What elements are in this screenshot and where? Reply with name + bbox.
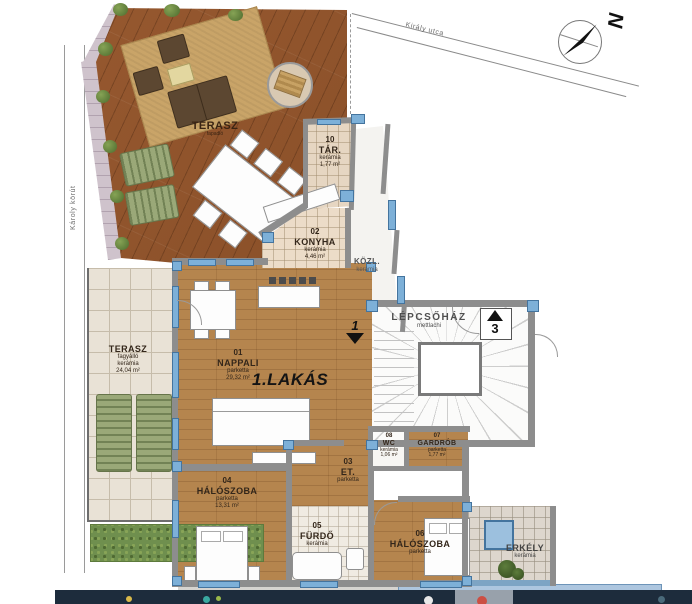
room-finish: parketta (328, 477, 368, 484)
wall-column (351, 114, 365, 124)
room-finish: kerámia (345, 267, 389, 274)
kitchen-hob (269, 277, 276, 284)
room-finish: fagyálló (99, 354, 157, 361)
bed (196, 526, 248, 582)
marker-number: 1 (344, 318, 366, 333)
room-number: 07 (406, 433, 468, 440)
wall-column (462, 502, 472, 512)
room-name: HÁLÓSZOBA (376, 539, 464, 549)
dining-chair (215, 281, 230, 291)
window-segment (172, 418, 179, 450)
terrace-edge (87, 268, 89, 522)
room-label-kozl: KÖZL. kerámia (345, 258, 389, 274)
marker-number: 3 (481, 321, 509, 336)
room-finish: parketta (376, 549, 464, 556)
room-number: 08 (372, 433, 406, 440)
room-name: NAPPALI (210, 358, 266, 368)
hedge-bush (164, 4, 180, 17)
wall-segment (368, 426, 470, 432)
street-edge-line (64, 45, 65, 573)
balcony-rail (466, 580, 556, 586)
kitchen-counter (258, 286, 320, 308)
property-line-dashed (350, 14, 351, 114)
terrace-edge (87, 520, 179, 522)
room-finish: kerámia (286, 247, 344, 254)
room-number: 06 (376, 530, 464, 539)
street-label-kiraly-utca: Király utca (405, 22, 445, 38)
floorplan-canvas: Károly körút Király utca N (0, 0, 692, 604)
window-segment (397, 276, 405, 304)
room-name: TÁR. (310, 145, 350, 155)
hedge-bush (110, 190, 124, 203)
room-finish: fapadló (185, 132, 245, 138)
dining-chair (194, 281, 209, 291)
wall-column (462, 576, 472, 586)
room-name: KÖZL. (345, 258, 389, 267)
hedge-bush (113, 3, 128, 16)
bathtub (292, 552, 342, 580)
room-label-terasz-tile: TERASZ fagyálló kerámia 24,04 m² (99, 344, 157, 374)
room-area: 24,04 m² (99, 368, 157, 375)
taskbar-icon-yellow[interactable] (126, 596, 132, 602)
stair-treads (374, 329, 414, 439)
room-number: 05 (288, 522, 346, 531)
room-finish: kerámia (310, 155, 350, 162)
pillow (223, 531, 243, 542)
washbasin (346, 548, 364, 570)
wall-column (262, 232, 274, 243)
sun-lounger (96, 394, 132, 472)
room-finish: kerámia (288, 541, 346, 548)
room-name: KONYHA (286, 237, 344, 247)
taskbar-icon-red[interactable] (477, 596, 487, 604)
wall-segment (288, 440, 344, 446)
room-label-haloszoba06: 06 HÁLÓSZOBA parketta (376, 530, 464, 556)
room-area: 4,46 m² (286, 254, 344, 261)
wall-segment (368, 470, 374, 586)
window-segment (172, 352, 179, 398)
kitchen-hob (309, 277, 316, 284)
tv-bench (252, 452, 316, 464)
kitchen-hob (299, 277, 306, 284)
room-number: 04 (188, 477, 266, 486)
room-label-lepcsohaz: LÉPCSŐHÁZ mettlachi (388, 312, 470, 330)
dining-chair (215, 329, 230, 339)
hedge-bush (103, 140, 117, 153)
nightstand (248, 566, 260, 581)
wall-column (172, 261, 182, 271)
window-segment (172, 500, 179, 538)
window-segment (300, 581, 338, 588)
room-label-tar: 10 TÁR. kerámia 1,77 m² (310, 136, 350, 168)
room-area: 1,06 m² (372, 453, 406, 459)
taskbar-icon-white[interactable] (424, 596, 433, 604)
room-label-erkely: ERKÉLY kerámia (498, 543, 552, 560)
kitchen-hob (289, 277, 296, 284)
room-area: 1,77 m² (406, 453, 468, 459)
nightstand (184, 566, 196, 581)
hedge-bush (115, 237, 129, 250)
window-segment (198, 581, 240, 588)
room-name: ERKÉLY (498, 543, 552, 553)
hedge-bush (98, 42, 113, 56)
hedge-bush (96, 90, 110, 103)
wall-column (172, 576, 182, 586)
room-number: 01 (210, 349, 266, 358)
wall-segment (398, 496, 470, 502)
taskbar (55, 590, 692, 604)
wall-segment (286, 440, 292, 585)
sofa (212, 398, 310, 446)
entrance-marker-1: 1 (344, 318, 366, 344)
sofa-seam (213, 411, 309, 412)
room-label-gardrob: 07 GARDRÓB parketta 1,77 m² (406, 433, 468, 459)
wall-column (283, 440, 294, 450)
window-segment (317, 119, 341, 125)
room-label-et: 03 ET. parketta (328, 458, 368, 484)
room-name: LÉPCSŐHÁZ (388, 312, 470, 323)
apartment-title: 1.LAKÁS (252, 370, 328, 390)
arrow-up-icon (487, 310, 503, 321)
taskbar-icon-green[interactable] (216, 596, 221, 601)
window-segment (226, 259, 254, 266)
sun-lounger (136, 394, 172, 472)
room-finish: parketta (188, 496, 266, 503)
wall-segment (303, 122, 308, 208)
plant (512, 568, 524, 580)
room-label-furdo: 05 FÜRDŐ kerámia (288, 522, 346, 548)
room-label-konyha: 02 KONYHA kerámia 4,46 m² (286, 228, 344, 260)
room-number: 10 (310, 136, 350, 145)
wall-segment (391, 230, 399, 274)
room-number: 02 (286, 228, 344, 237)
room-finish: mettlachi (388, 323, 470, 330)
pillow (201, 531, 221, 542)
wall-column (340, 190, 354, 202)
room-finish: kerámia (99, 361, 157, 368)
room-finish: kerámia (498, 553, 552, 560)
room-name: FÜRDŐ (288, 531, 346, 541)
window-segment (420, 581, 462, 588)
room-name: HÁLÓSZOBA (188, 486, 266, 496)
wall-column (527, 300, 539, 312)
street-label-karoly-korut: Károly körút (70, 185, 77, 230)
wall-segment (528, 300, 535, 445)
window-segment (388, 200, 396, 230)
room-name: TERASZ (99, 344, 157, 354)
room-label-wc: 08 WC kerámia 1,06 m² (372, 433, 406, 459)
wall-segment (370, 300, 535, 307)
arrow-down-icon (346, 333, 364, 344)
sofa-seam (196, 85, 207, 120)
taskbar-icon-teal[interactable] (203, 596, 210, 603)
wall-segment (176, 464, 290, 471)
kitchen-hob (279, 277, 286, 284)
hedge-bush (228, 9, 243, 21)
room-area: 13,31 m² (188, 503, 266, 510)
room-area: 1,77 m² (310, 162, 350, 169)
dining-chair (194, 329, 209, 339)
door-swing-arc (535, 334, 558, 357)
wall-column (366, 300, 378, 312)
room-name: ET. (328, 467, 368, 477)
room-number: 03 (328, 458, 368, 467)
wall-segment (368, 466, 468, 471)
room-label-haloszoba04: 04 HÁLÓSZOBA parketta 13,31 m² (188, 477, 266, 509)
room-label-terasz-deck: TERASZ fapadló (185, 120, 245, 138)
compass-north-letter: N (602, 11, 627, 29)
stair-void (418, 342, 482, 396)
window-segment (188, 259, 216, 266)
entrance-marker-3: 3 (481, 310, 509, 336)
wall-column (172, 461, 182, 472)
street-edge-line (84, 45, 85, 573)
taskbar-icon-dim[interactable] (658, 596, 665, 603)
